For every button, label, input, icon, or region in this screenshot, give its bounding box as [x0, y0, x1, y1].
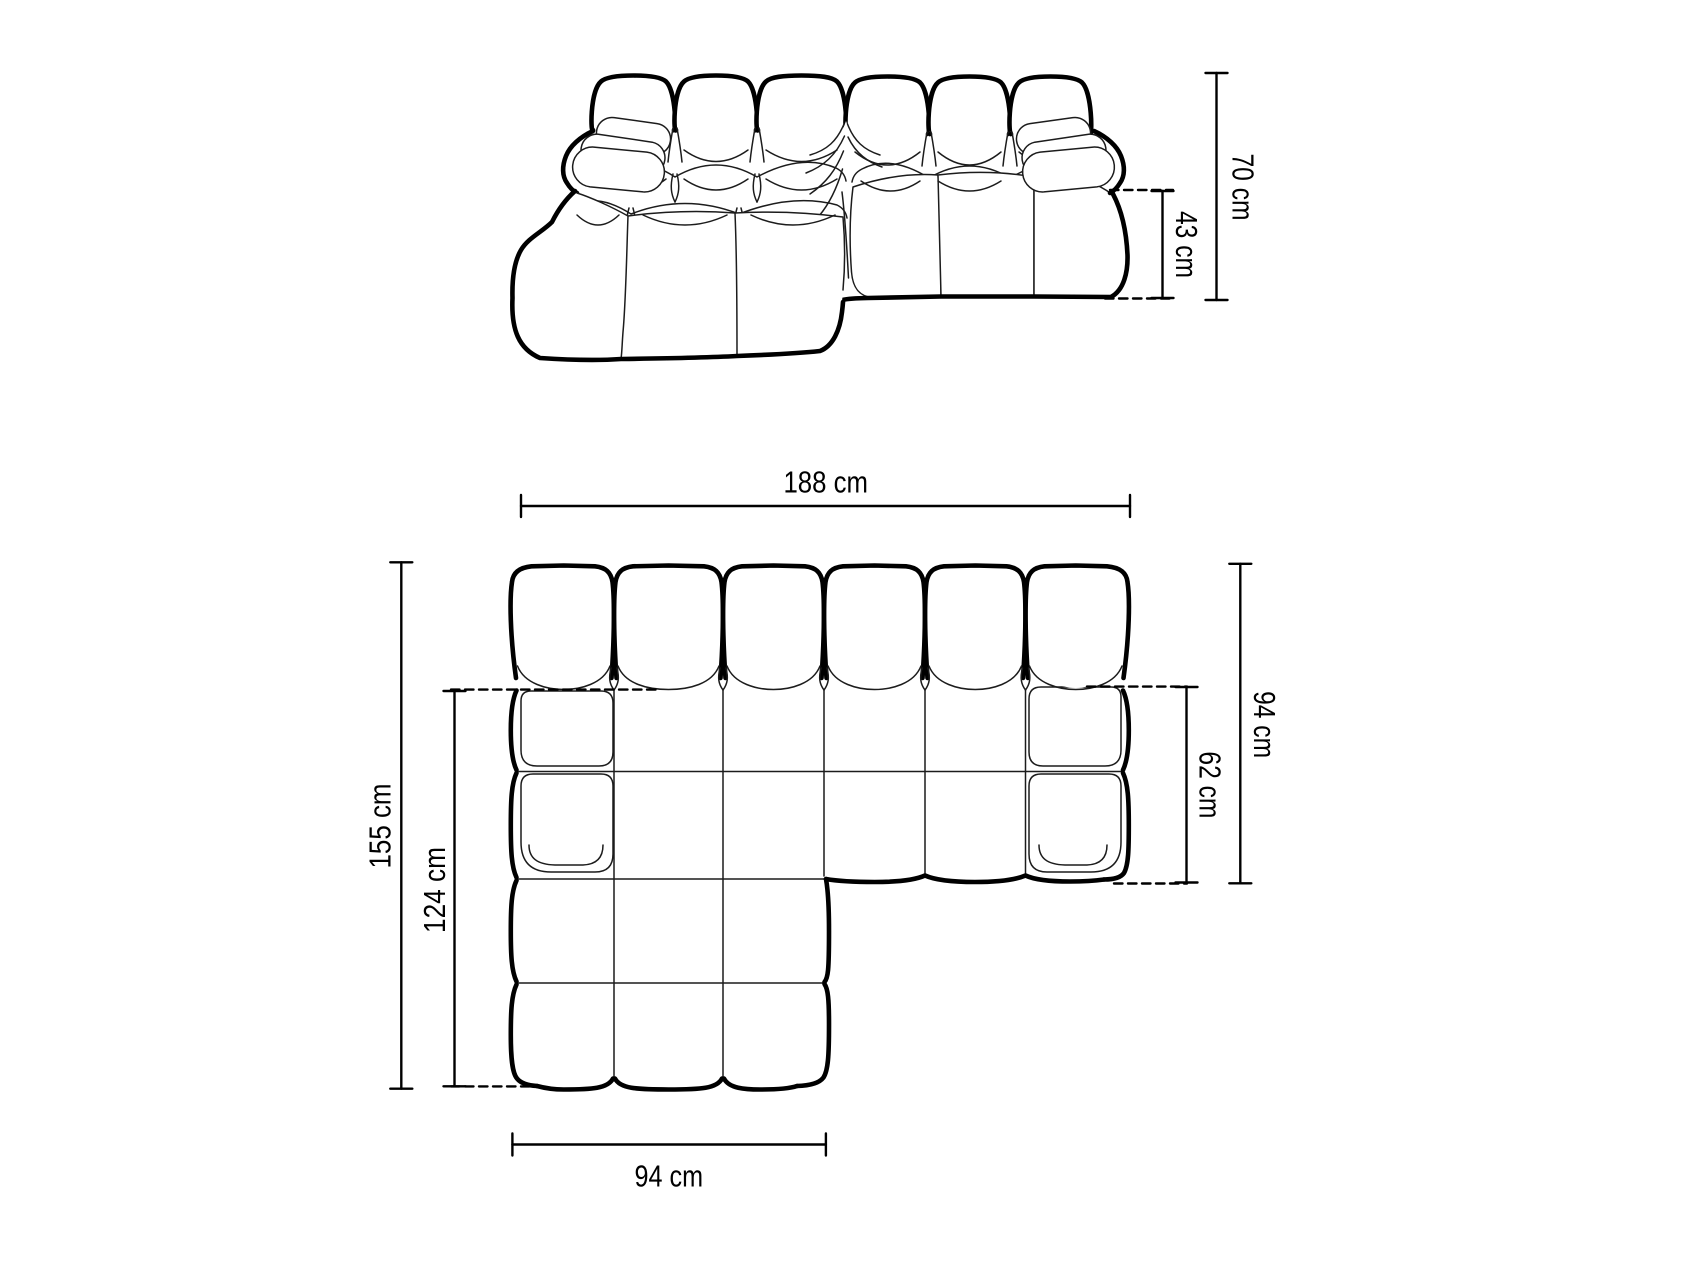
svg-text:188 cm: 188 cm — [783, 465, 868, 499]
svg-text:43 cm: 43 cm — [1169, 211, 1203, 278]
svg-text:94 cm: 94 cm — [635, 1160, 704, 1194]
svg-text:62 cm: 62 cm — [1193, 751, 1227, 818]
svg-text:94 cm: 94 cm — [1247, 691, 1281, 758]
svg-text:124 cm: 124 cm — [418, 847, 452, 933]
svg-text:155 cm: 155 cm — [364, 784, 398, 869]
svg-text:70 cm: 70 cm — [1226, 154, 1260, 221]
